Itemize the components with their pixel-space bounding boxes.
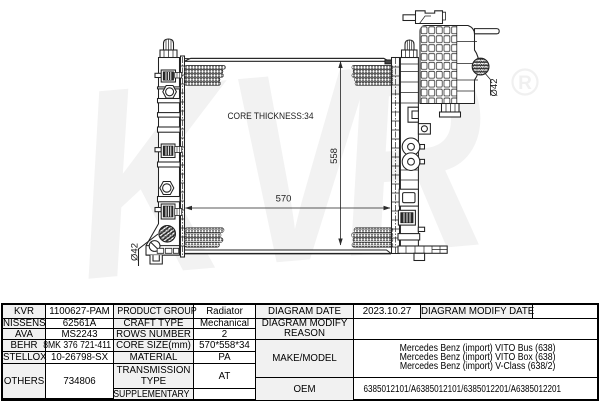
svg-text:CORE THICKNESS:34: CORE THICKNESS:34: [228, 111, 314, 121]
svg-text:570: 570: [276, 194, 292, 205]
svg-text:R: R: [518, 73, 532, 94]
svg-text:558: 558: [329, 148, 340, 164]
svg-text:Ø42: Ø42: [130, 243, 141, 261]
svg-text:Ø42: Ø42: [489, 79, 500, 97]
